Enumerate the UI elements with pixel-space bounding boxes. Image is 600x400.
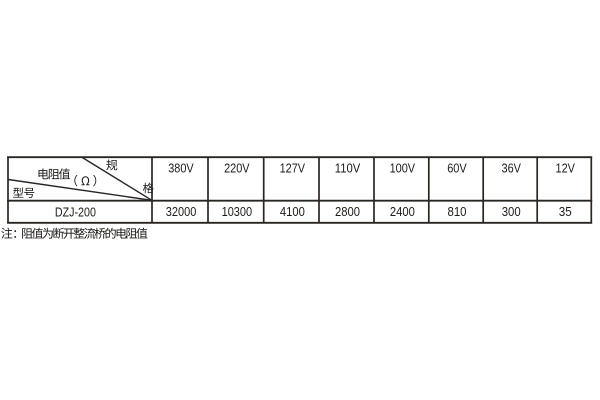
svg-text:4100: 4100 bbox=[280, 204, 305, 219]
svg-text:380V: 380V bbox=[168, 162, 194, 176]
svg-text:32000: 32000 bbox=[166, 204, 197, 219]
svg-text:220V: 220V bbox=[224, 162, 250, 176]
svg-text:36V: 36V bbox=[502, 162, 522, 176]
svg-text:35: 35 bbox=[559, 204, 572, 219]
svg-text:2400: 2400 bbox=[390, 204, 415, 219]
svg-text:12V: 12V bbox=[556, 162, 576, 176]
svg-text:60V: 60V bbox=[447, 162, 467, 176]
svg-text:10300: 10300 bbox=[222, 204, 253, 219]
svg-text:300: 300 bbox=[502, 204, 521, 219]
svg-text:127V: 127V bbox=[280, 162, 306, 176]
svg-text:110V: 110V bbox=[335, 162, 361, 176]
svg-text:DZJ-200: DZJ-200 bbox=[55, 204, 96, 219]
svg-text:100V: 100V bbox=[390, 162, 416, 176]
svg-text:810: 810 bbox=[448, 204, 467, 219]
svg-text:2800: 2800 bbox=[335, 204, 360, 219]
